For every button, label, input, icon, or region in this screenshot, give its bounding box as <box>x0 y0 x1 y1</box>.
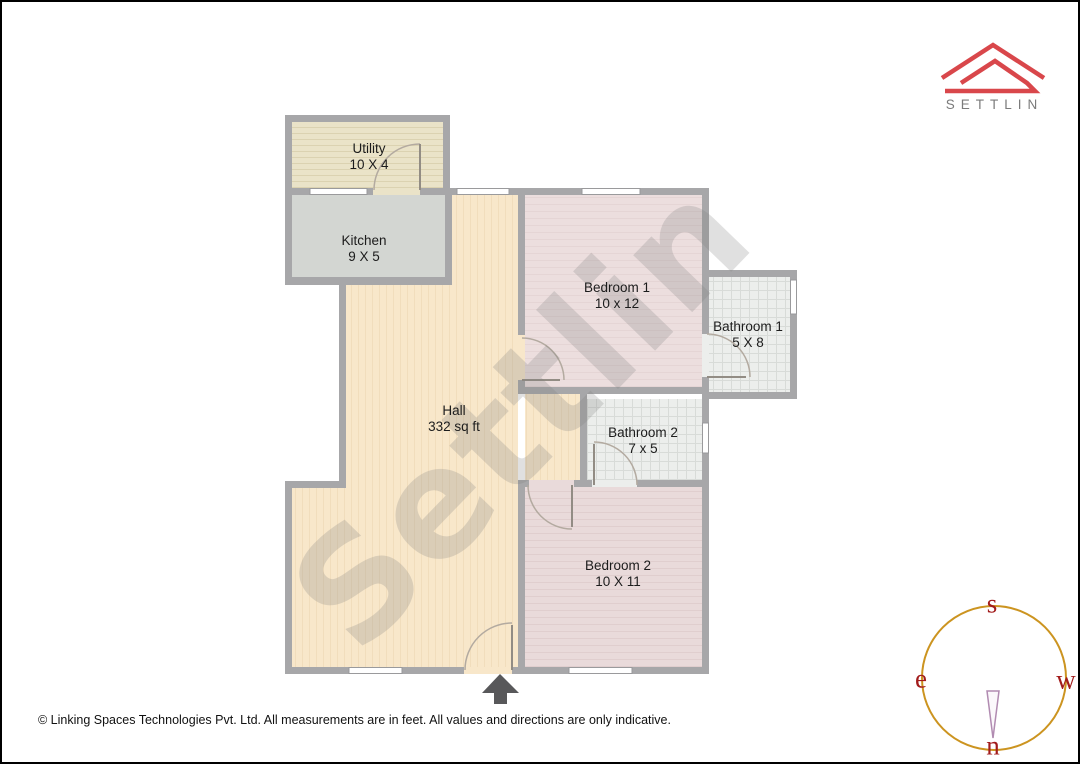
room-name: Bathroom 1 <box>713 319 783 335</box>
room-dims: 332 sq ft <box>428 419 480 435</box>
settlin-logo-icon <box>938 38 1048 96</box>
compass-west-label: w <box>1056 667 1076 694</box>
room-dims: 9 X 5 <box>341 249 386 265</box>
room-name: Utility <box>349 141 388 157</box>
room-label-bathroom1: Bathroom 1 5 X 8 <box>713 319 783 350</box>
room-dims: 10 X 11 <box>585 574 651 590</box>
room-dims: 10 X 4 <box>349 157 388 173</box>
room-label-bedroom2: Bedroom 2 10 X 11 <box>585 558 651 589</box>
room-label-bedroom1: Bedroom 1 10 x 12 <box>584 280 650 311</box>
room-label-bathroom2: Bathroom 2 7 x 5 <box>608 425 678 456</box>
room-dims: 5 X 8 <box>713 335 783 351</box>
room-label-utility: Utility 10 X 4 <box>349 141 388 172</box>
room-name: Bedroom 2 <box>585 558 651 574</box>
room-label-kitchen: Kitchen 9 X 5 <box>341 233 386 264</box>
room-label-hall: Hall 332 sq ft <box>428 403 480 434</box>
room-name: Hall <box>428 403 480 419</box>
compass-north-label: n <box>986 733 1000 760</box>
entrance-arrow-icon <box>482 674 519 704</box>
floorplan-page: Settlin Utility 10 X 4 Kitchen 9 X 5 Bed… <box>0 0 1080 764</box>
room-dims: 7 x 5 <box>608 441 678 457</box>
room-name: Bathroom 2 <box>608 425 678 441</box>
settlin-logo-text: SETTLIN <box>932 97 1057 112</box>
room-name: Kitchen <box>341 233 386 249</box>
compass-east-label: e <box>915 666 927 693</box>
room-dims: 10 x 12 <box>584 296 650 312</box>
compass-south-label: s <box>987 591 998 618</box>
room-name: Bedroom 1 <box>584 280 650 296</box>
copyright-text: © Linking Spaces Technologies Pvt. Ltd. … <box>38 713 671 727</box>
